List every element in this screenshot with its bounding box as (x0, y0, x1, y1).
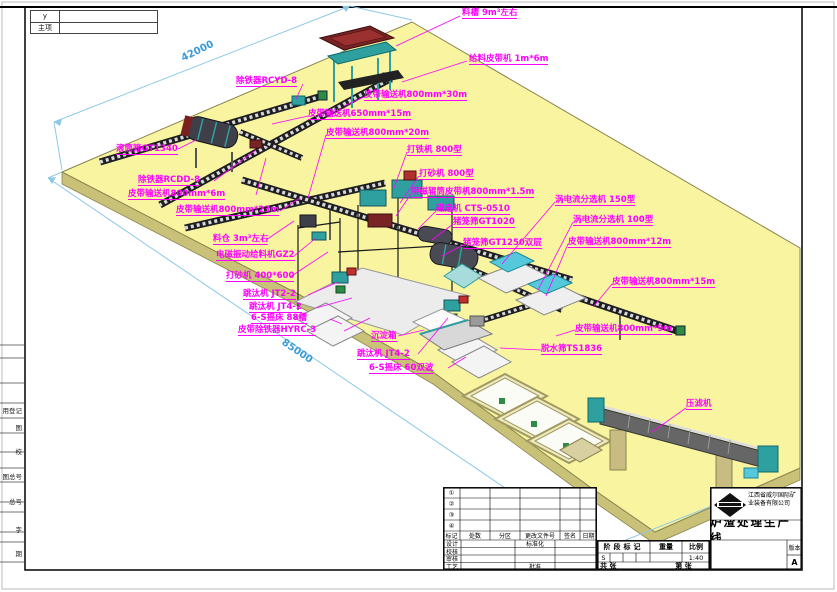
label-table-88: 6-S摇床 88槽 (251, 314, 307, 324)
revision-symbol: ③ (443, 509, 460, 520)
stage-value: S (597, 553, 610, 562)
label-settling-box: 沉淀箱 (371, 332, 397, 342)
margin-field: 期 (0, 548, 22, 558)
sign-check: 校核 (443, 548, 461, 556)
revision-header-date: 日期 (580, 531, 597, 540)
scale-label: 比例 (682, 540, 710, 553)
label-filter-press: 压滤机 (686, 400, 712, 410)
iron-remover-rcdd8 (250, 140, 262, 148)
revision-symbol: ② (443, 498, 460, 509)
label-belt-650-15: 皮带输送机650mm*15m (308, 110, 411, 120)
margin-field: 总号 (0, 496, 22, 506)
label-belt-iron-hyrc3: 皮带除铁器HYRC-3 (238, 326, 316, 336)
label-magnetic-roller-belt: 带磁辊筒皮带机800mm*1.5m (411, 188, 534, 198)
version-label: 版本 (787, 540, 802, 555)
revision-header-doc: 更改文件号 (520, 531, 560, 540)
sign-approve: 批准 (515, 563, 555, 571)
margin-field: 校 (0, 446, 22, 456)
label-cage-screen-1020: 猪笼筛GT1020 (453, 218, 515, 228)
label-iron-beater-800: 打铁机 800型 (407, 146, 462, 156)
label-bin: 料仓 3m³左右 (213, 235, 268, 245)
sign-standardization: 标准化 (515, 540, 555, 548)
label-trommel-1340: 滚筒筛GT1340 (116, 145, 178, 155)
title-block-mid: 阶段标记 重量 比例 S 1:40 共 张 第 张 (597, 540, 710, 570)
label-belt-800-12: 皮带输送机800mm*12m (568, 238, 671, 248)
label-belt-800-9: 皮带输送机800mm*9m (575, 325, 672, 335)
scale-value: 1:40 (682, 553, 710, 562)
sign-design: 设计 (443, 540, 461, 548)
label-sand-maker-800: 打砂机 800型 (419, 170, 474, 180)
sheet-number: 第 张 (661, 562, 706, 570)
stage-mark-label: 阶段标记 (597, 540, 650, 553)
label-belt-800-6: 皮带输送机800mm*6m (128, 190, 225, 200)
iron-remover-rcyd8 (292, 96, 305, 105)
em-vibrating-feeder (312, 232, 326, 240)
label-cage-screen-1250: 猪笼筛GT1250双层 (463, 239, 542, 249)
label-belt-800-23: 皮带输送机800mm*23m (176, 206, 279, 216)
label-magnetic-separator: 磁选机 CTS-0510 (436, 205, 510, 215)
margin-field: 字 (0, 524, 22, 534)
revision-header-sign: 签名 (560, 531, 580, 540)
sheets-total: 共 张 (600, 562, 645, 570)
label-belt-800-30: 皮带输送机800mm*30m (364, 91, 467, 101)
label-jig-jt42-b: 跳汰机 JT4-2 (357, 350, 410, 360)
label-feed-trough: 料槽 9m³左右 (462, 9, 517, 19)
label-em-feeder: 电磁振动给料机GZ2 (216, 251, 295, 261)
label-belt-800-15: 皮带输送机800mm*15m (612, 278, 715, 288)
label-eddy-100: 涡电流分选机 100型 (573, 216, 653, 226)
corner-box-row1: y (31, 12, 59, 20)
revision-header-zone: 分区 (490, 531, 520, 540)
corner-box: y 主项 (30, 10, 158, 34)
sign-review: 审核 (443, 555, 461, 563)
margin-field: 用登记 (0, 405, 22, 415)
corner-box-row2: 主项 (31, 23, 59, 33)
revision-symbol: ④ (443, 520, 460, 531)
label-iron-remover-rcdd8: 除铁器RCDD-8 (138, 176, 200, 186)
revision-header-count: 处数 (460, 531, 490, 540)
label-iron-remover-rcyd8: 除铁器RCYD-8 (236, 77, 297, 87)
label-belt-800-20: 皮带输送机800mm*20m (326, 129, 429, 139)
label-jig-jt42-a: 跳汰机 JT4-2 (249, 303, 302, 313)
label-jig-jt22: 跳汰机 JT2-2 (243, 290, 296, 300)
version-value: A (787, 555, 802, 570)
company-logo (714, 493, 746, 517)
weight-label: 重量 (650, 540, 682, 553)
title-block-left: ① ② ③ ④ 标记 处数 分区 更改文件号 签名 日期 设计 校核 审核 工艺… (443, 487, 597, 570)
revision-symbol: ① (443, 487, 460, 498)
drawing-sheet: 料槽 9m³左右给料皮带机 1m*6m除铁器RCYD-8皮带输送机800mm*3… (0, 0, 837, 592)
feed-bin (300, 215, 316, 227)
label-feed-belt: 给料皮带机 1m*6m (469, 55, 548, 65)
revision-header-mark: 标记 (443, 531, 460, 540)
sign-process: 工艺 (443, 563, 461, 571)
label-sand-maker-400: 打砂机 400*600 (226, 272, 294, 282)
margin-field: 图总号 (0, 471, 22, 481)
company-name: 江西省威尔国际矿业装备有限公司 (748, 489, 800, 519)
drawing-title: 炉渣处理生产线 (710, 520, 802, 540)
title-block-right: 江西省威尔国际矿业装备有限公司 炉渣处理生产线 版本 A (710, 487, 802, 570)
label-table-60: 6-S摇床 60双波 (369, 364, 433, 374)
label-eddy-150: 涡电流分选机 150型 (555, 196, 635, 206)
margin-field: 图 (0, 422, 22, 432)
label-dewater-screen: 脱水筛TS1836 (541, 345, 602, 355)
